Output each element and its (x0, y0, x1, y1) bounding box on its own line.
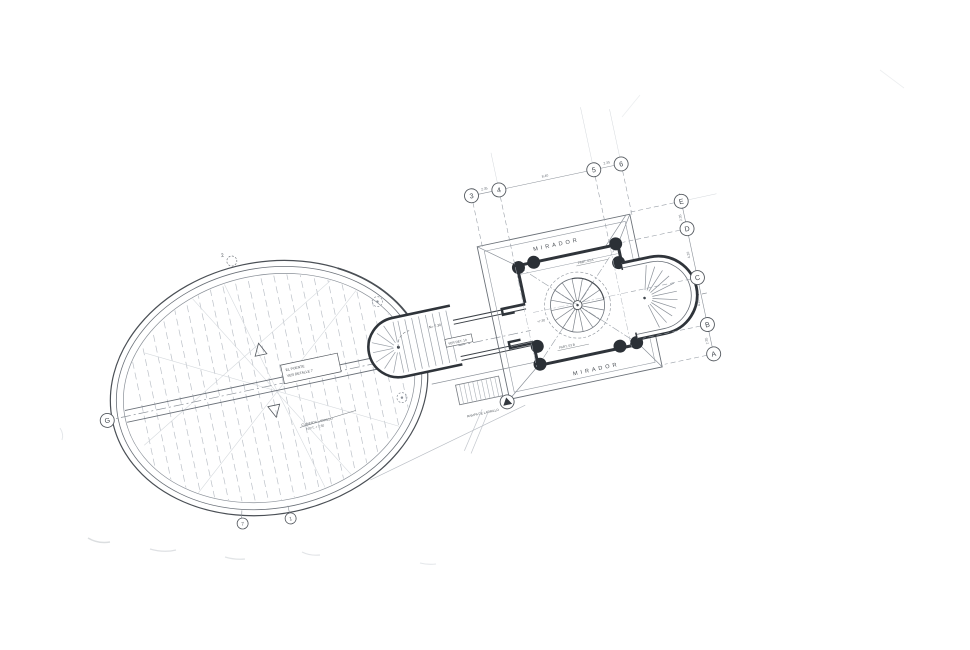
dim-top-3: 2.35 (603, 160, 610, 165)
dim-right-4: 2.35 (704, 337, 709, 344)
mirador-title-bottom: MIRADOR (573, 362, 621, 378)
scan-smudges (60, 70, 904, 564)
ramp-label: RAMPA DE LADRILLO (467, 408, 500, 419)
grid-bubble-2: 2 (221, 253, 225, 259)
dim-top-2: 8.40 (541, 173, 548, 178)
dim-right-3: 4.20 (696, 299, 701, 306)
dim-right-1: 2.35 (678, 214, 683, 221)
level-triangle-down (268, 404, 282, 418)
plan-drawing: EL PUENTE VER DETALLE 7 CUBIERTA LADRILL… (0, 0, 970, 650)
rotated-plan: EL PUENTE VER DETALLE 7 CUBIERTA LADRILL… (57, 83, 765, 558)
dim-right-2: 4.20 (686, 251, 691, 258)
elliptical-terrace (84, 221, 452, 545)
mirador-room (492, 236, 645, 376)
blueprint-sheet: EL PUENTE VER DETALLE 7 CUBIERTA LADRILL… (0, 0, 970, 650)
detail-marker-top (226, 255, 238, 267)
level-triangle-up (253, 342, 267, 356)
dim-top-1: 2.35 (481, 186, 488, 191)
roof-note: CUBIERTA LADRILLO N.P.T. + 7.30 (299, 411, 358, 433)
